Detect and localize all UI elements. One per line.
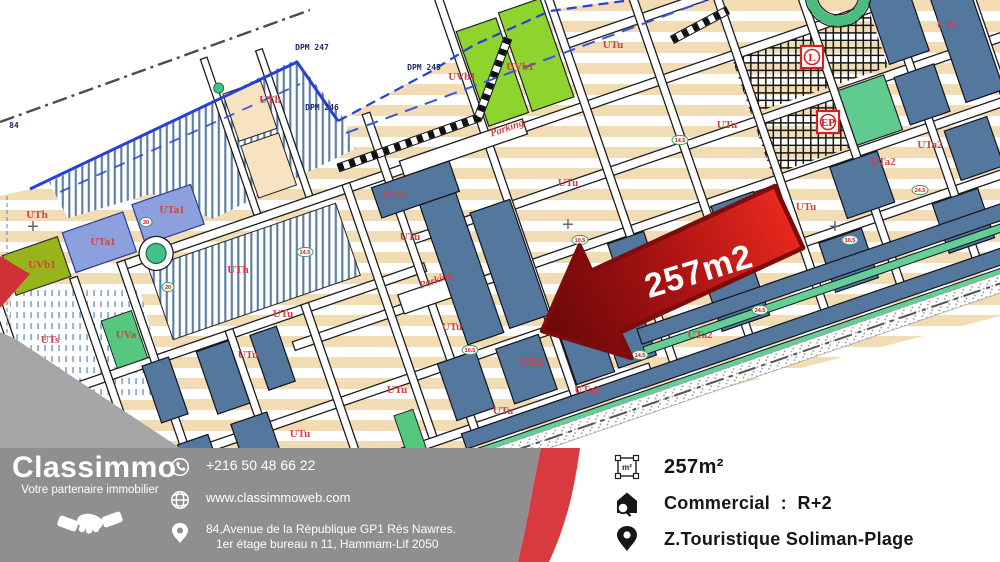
map-label: UTa2	[870, 156, 896, 168]
map-label: UTu	[387, 384, 407, 396]
phone-row: +216 50 48 66 22	[170, 457, 456, 477]
property-location: Z.Touristique Soliman-Plage	[664, 529, 914, 550]
map-label: UTu	[603, 39, 623, 51]
zoning-map-svg: L EP UTuUTuUTuUTuUTuUTuUTuUTuUTuUTuUTuUT…	[0, 0, 1000, 450]
area-icon-unit: m²	[622, 463, 632, 472]
location-row: Z.Touristique Soliman-Plage	[612, 521, 914, 557]
property-area: 257m²	[664, 456, 724, 479]
map-label: UTu	[558, 177, 578, 189]
property-type: Commercial : R+2	[664, 493, 832, 514]
badge-l: L	[801, 46, 823, 68]
badge-ep-text: EP	[821, 117, 835, 129]
property-specs: m² 257m² Commercial : R+2	[612, 449, 914, 557]
globe-icon	[170, 490, 190, 510]
map-label: +	[27, 216, 39, 238]
map-label: UTa2	[687, 329, 713, 341]
map-label: UTa1	[90, 236, 115, 248]
address-line-1: 84,Avenue de la République GP1 Rés Nawre…	[206, 522, 456, 536]
map-label: UTu	[717, 119, 737, 131]
zoning-map: L EP UTuUTuUTuUTuUTuUTuUTuUTuUTuUTuUTuUT…	[0, 0, 1000, 450]
map-label: 20	[165, 285, 171, 291]
address-pin-icon	[170, 522, 190, 544]
brand-logo-text: Classimmo	[12, 452, 168, 484]
map-label: UTa1	[159, 204, 184, 216]
map-label: UTu	[400, 231, 420, 243]
map-label: 10.5	[845, 238, 856, 244]
area-icon: m²	[612, 453, 642, 481]
address-row: 84,Avenue de la République GP1 Rés Nawre…	[170, 522, 456, 552]
type-row: Commercial : R+2	[612, 485, 914, 521]
map-label: DPM 247	[295, 43, 329, 52]
map-label: 84	[9, 121, 19, 130]
map-label: UTu	[290, 428, 310, 440]
map-label: UTa2	[382, 189, 408, 201]
map-label: UTa2	[574, 384, 600, 396]
map-label: UTu	[442, 321, 462, 333]
map-label: +	[829, 216, 841, 238]
brand-block: Classimmo Votre partenaire immobilier	[12, 452, 168, 547]
address-line-2: 1er étage bureau n 11, Hammam-Lif 2050	[206, 537, 439, 551]
website-url[interactable]: www.classimmoweb.com	[206, 490, 350, 505]
map-label: UTu	[238, 349, 258, 361]
website-row: www.classimmoweb.com	[170, 490, 456, 510]
badge-ep: EP	[817, 111, 839, 133]
whatsapp-icon	[170, 457, 190, 477]
map-label: 24.5	[755, 308, 766, 314]
map-label: UTa2	[519, 356, 545, 368]
map-label: UTs	[41, 334, 60, 346]
map-label: UVb1	[28, 259, 56, 271]
map-label: 14.5	[635, 353, 646, 359]
badge-l-text: L	[808, 52, 815, 64]
contact-block: +216 50 48 66 22 www.classimmoweb.com	[170, 457, 456, 552]
brand-tagline: Votre partenaire immobilier	[12, 484, 168, 497]
location-pin-icon	[612, 525, 642, 553]
map-label: +	[562, 214, 574, 236]
flyer: L EP UTuUTuUTuUTuUTuUTuUTuUTuUTuUTuUTuUT…	[0, 0, 1000, 562]
area-row: m² 257m²	[612, 449, 914, 485]
phone-number[interactable]: +216 50 48 66 22	[206, 457, 315, 473]
handshake-icon	[54, 502, 126, 542]
map-label: DPM 245	[407, 63, 441, 72]
map-label: 20	[143, 220, 149, 226]
address-text: 84,Avenue de la République GP1 Rés Nawre…	[206, 522, 456, 552]
map-label: UTu	[273, 308, 293, 320]
map-label: 24.5	[915, 188, 926, 194]
map-label: 24.5	[300, 250, 311, 256]
map-label: UVb1	[448, 71, 476, 83]
map-label: UTa2	[917, 139, 943, 151]
map-label: 14.5	[675, 138, 686, 144]
map-label: UTh	[259, 94, 280, 106]
map-label: UTu	[937, 19, 957, 31]
map-label: 10.5	[465, 348, 476, 354]
map-label: UVb1	[506, 61, 534, 73]
footer: Classimmo Votre partenaire immobilier	[0, 448, 1000, 562]
map-label: 10.5	[575, 238, 586, 244]
map-label: UTu	[796, 201, 816, 213]
house-search-icon	[612, 489, 642, 517]
map-label: UVa	[116, 329, 137, 341]
map-label: UTh	[227, 264, 248, 276]
map-label: UTu	[493, 405, 513, 417]
map-label: DPM 246	[305, 103, 339, 112]
